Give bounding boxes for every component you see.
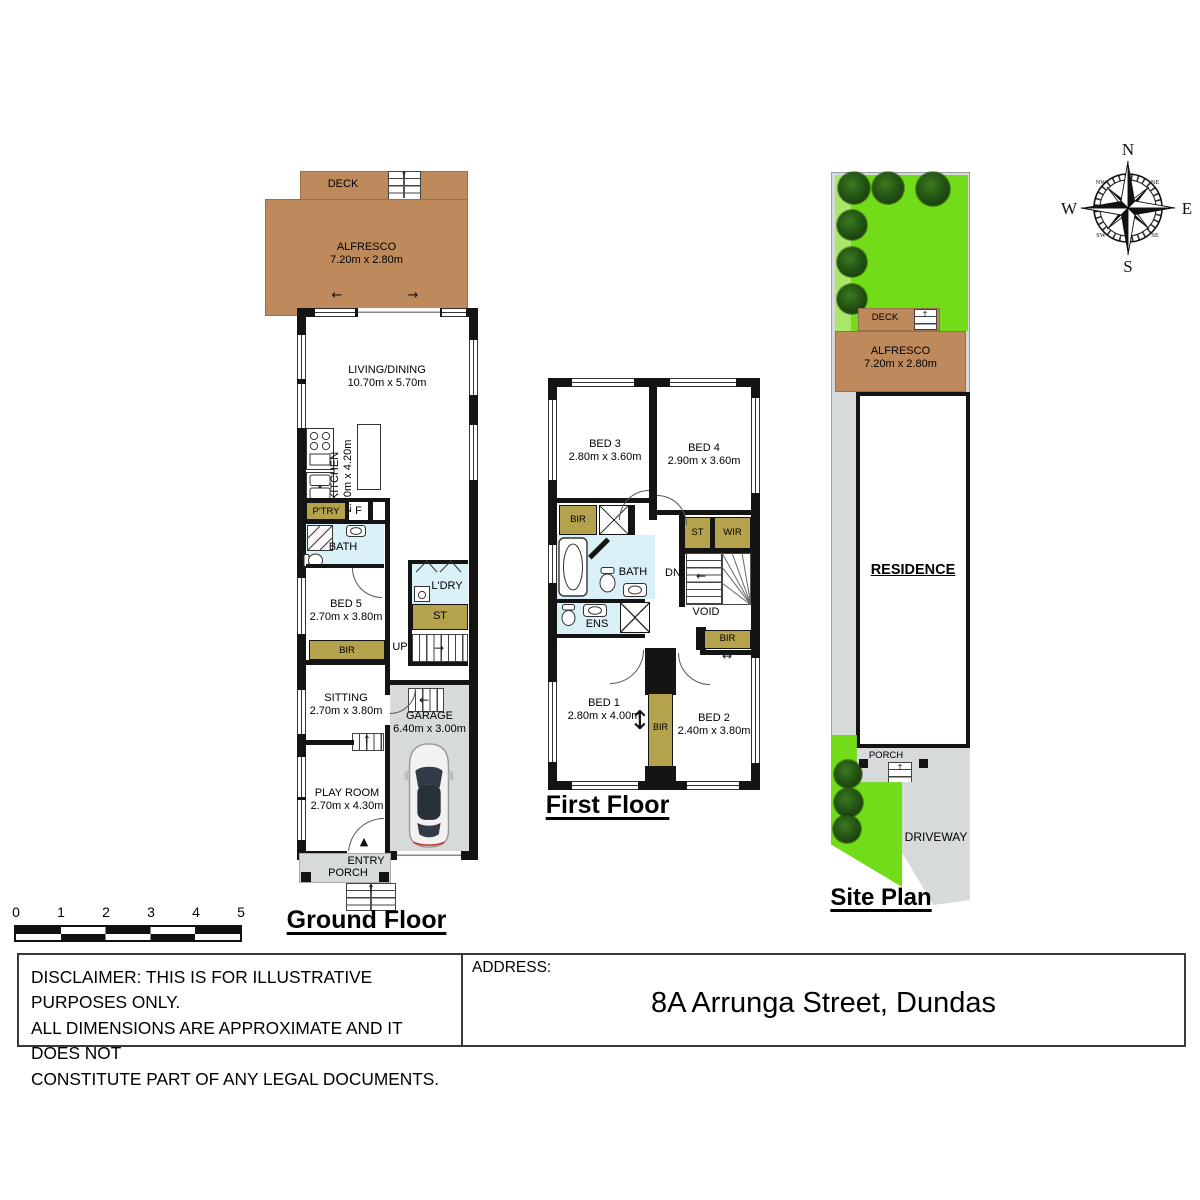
compass-se: SE (1151, 232, 1159, 239)
garage-label: GARAGE 6.40m x 3.00m (390, 710, 469, 736)
floorplan-sheet: DECK ↑ ALFRESCO 7.20m x 2.80m ← → LIVING… (0, 0, 1200, 1200)
window (687, 781, 739, 790)
disclaimer-line: DISCLAIMER: THIS IS FOR ILLUSTRATIVE PUR… (31, 965, 449, 1016)
porch-stairs-arrow-icon: ↑ (364, 885, 378, 895)
site-deck-label: DECK (859, 312, 911, 323)
sliding-door-opening (358, 308, 440, 317)
window (297, 578, 306, 634)
laundry-label: L'DRY (426, 580, 468, 593)
kitchen-island (357, 424, 381, 490)
window (297, 800, 306, 840)
tree-icon (837, 247, 867, 277)
window (548, 682, 557, 762)
scale-tick: 1 (52, 904, 70, 921)
site-deck-stairs-arrow-icon: ↑ (920, 311, 930, 319)
window (297, 690, 306, 734)
scale-tick: 3 (142, 904, 160, 921)
disclaimer-line: CONSTITUTE PART OF ANY LEGAL DOCUMENTS. (31, 1067, 449, 1092)
entry-arrow-icon: ▲ (356, 836, 372, 847)
dn-label: DN (662, 567, 684, 580)
site-plan-title: Site Plan (816, 884, 946, 912)
address-value: 8A Arrunga Street, Dundas (461, 986, 1186, 1020)
scale-tick: 2 (97, 904, 115, 921)
first-bir-right-label: BIR (704, 633, 751, 644)
wir-label: WIR (714, 527, 751, 538)
tree-icon (833, 815, 861, 843)
ground-alfresco-label: ALFRESCO 7.20m x 2.80m (265, 241, 468, 267)
compass-s: S (1123, 257, 1132, 276)
bed3-label: BED 3 2.80m x 3.60m (558, 438, 652, 464)
slider-arrow-right-icon: → (398, 289, 428, 302)
window (548, 545, 557, 583)
bathtub-icon (558, 537, 588, 602)
bed2-label: BED 2 2.40m x 3.80m (674, 712, 754, 738)
entry-label-line2: PORCH (304, 867, 392, 880)
ground-st-label: ST (412, 610, 468, 623)
tree-icon (837, 210, 867, 240)
car-icon (403, 742, 455, 854)
bed4-label: BED 4 2.90m x 3.60m (658, 442, 750, 468)
window (670, 378, 736, 387)
ground-deck-label: DECK (300, 178, 386, 191)
driveway-label: DRIVEWAY (904, 830, 968, 844)
scale-tick: 4 (187, 904, 205, 921)
robe-arrow-v-icon: ↕ (629, 708, 645, 734)
compass-ne: NE (1151, 179, 1160, 186)
wall-segment (368, 502, 373, 520)
window (315, 308, 355, 317)
compass-e: E (1182, 199, 1192, 218)
scale-tick: 0 (7, 904, 25, 921)
compass-rose: N E S W NW NE SW SE (1058, 138, 1198, 283)
step-arrow-icon: ↑ (360, 736, 374, 746)
disclaimer-line: ALL DIMENSIONS ARE APPROXIMATE AND IT DO… (31, 1016, 449, 1067)
folding-door-icon (414, 560, 464, 578)
window (297, 384, 306, 428)
bir-mid-label: BIR (648, 722, 673, 733)
ground-floor-title: Ground Floor (279, 906, 454, 935)
compass-n: N (1122, 140, 1134, 159)
tree-icon (834, 788, 863, 817)
disclaimer-box: DISCLAIMER: THIS IS FOR ILLUSTRATIVE PUR… (17, 953, 463, 1047)
window (469, 425, 478, 480)
address-label: ADDRESS: (472, 959, 592, 977)
wall-segment (408, 662, 468, 666)
fridge-label: F (349, 505, 368, 518)
tree-icon (916, 172, 950, 206)
first-st-label: ST (684, 527, 711, 538)
void-label: VOID (684, 606, 728, 619)
window (751, 658, 760, 763)
window (442, 308, 466, 317)
ground-bath-label: BATH (318, 541, 368, 554)
down-stairs-arrow-icon: ← (688, 570, 714, 582)
bed5-label: BED 5 2.70m x 3.80m (306, 598, 386, 624)
compass-sw: SW (1096, 232, 1107, 239)
window (297, 757, 306, 797)
window (572, 378, 634, 387)
slider-arrow-left-icon: ← (322, 289, 352, 302)
residence-label: RESIDENCE (856, 562, 970, 579)
tree-icon (834, 760, 862, 788)
ensuite-label: ENS (577, 618, 617, 631)
bed5-bir-label: BIR (309, 645, 385, 656)
compass-w: W (1061, 199, 1078, 218)
deck-stairs-arrow-icon: ↑ (398, 172, 410, 181)
window (469, 340, 478, 395)
winder-stairs (722, 553, 751, 610)
first-floor-title: First Floor (545, 791, 670, 820)
wall-segment (306, 660, 390, 665)
window (297, 335, 306, 379)
site-alfresco-label: ALFRESCO 7.20m x 2.80m (835, 345, 966, 371)
toilet-icon (560, 604, 577, 632)
skylight-shaft (620, 602, 650, 633)
scale-bar: 0 1 2 3 4 5 (12, 904, 246, 948)
up-label: UP (390, 641, 410, 654)
tree-icon (872, 172, 904, 204)
wall-segment (645, 766, 676, 781)
sitting-label: SITTING 2.70m x 3.80m (306, 692, 386, 718)
site-porch-stairs-arrow-icon: ↑ (894, 764, 906, 772)
porch-pier (919, 759, 928, 768)
wall-segment (306, 740, 354, 745)
scale-tick: 5 (232, 904, 250, 921)
up-stairs-arrow-icon: → (426, 642, 452, 654)
window (548, 400, 557, 480)
first-bath-label: BATH (610, 566, 656, 579)
tree-icon (838, 172, 870, 204)
living-label: LIVING/DINING 10.70m x 5.70m (306, 364, 468, 390)
window (572, 781, 638, 790)
pantry-label: P'TRY (306, 506, 346, 517)
scale-bar-rule (14, 925, 242, 942)
basin-icon (346, 524, 366, 542)
compass-nw: NW (1096, 179, 1108, 186)
wall-segment (645, 648, 676, 695)
garage-stairs-arrow-icon: ← (412, 694, 436, 706)
window (751, 398, 760, 493)
playroom-label: PLAY ROOM 2.70m x 4.30m (306, 787, 388, 813)
first-bir-left-label: BIR (559, 514, 597, 525)
wall-segment (557, 634, 645, 638)
